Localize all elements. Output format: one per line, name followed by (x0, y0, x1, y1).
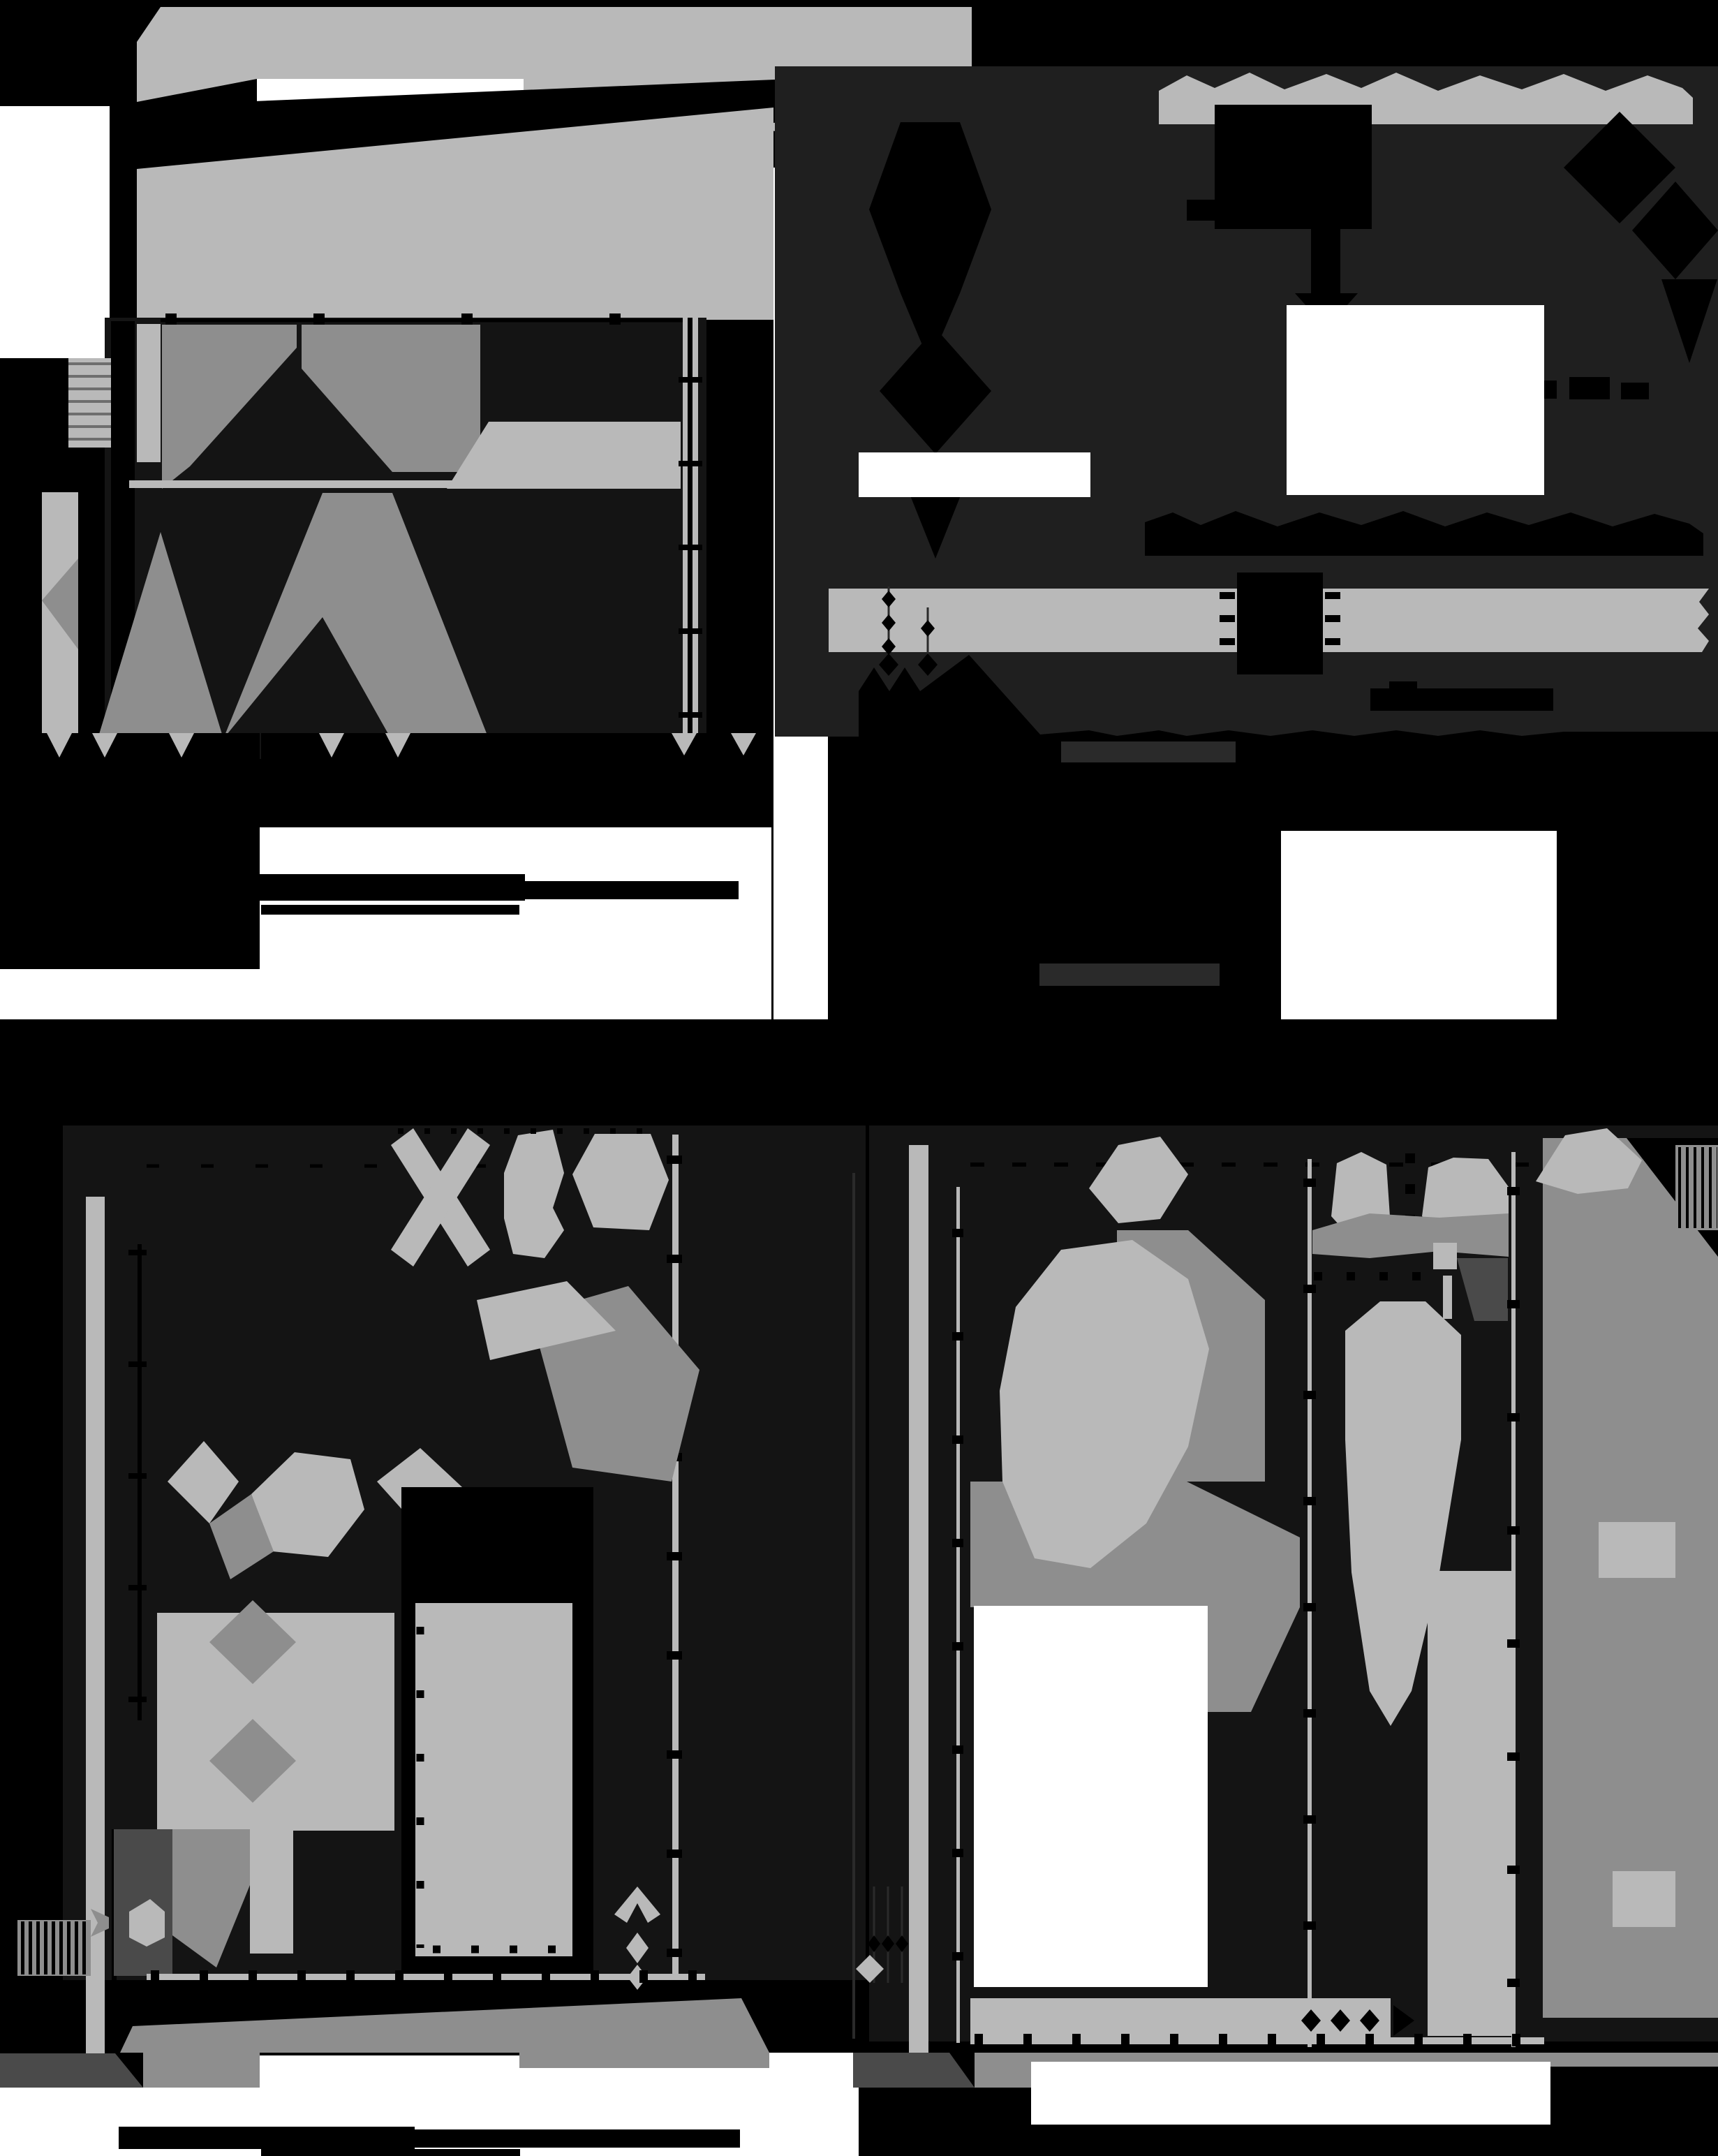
road-band-l1 (143, 2053, 260, 2088)
white-r (1031, 2062, 1550, 2125)
caption-underline (261, 905, 519, 915)
scalebar-blob-1 (119, 2127, 415, 2149)
left-bar (909, 1145, 928, 2065)
undertext-blob (1370, 688, 1553, 711)
corner-dark-left (0, 2053, 143, 2088)
white-court (974, 1606, 1208, 1987)
glyph-stem (1311, 229, 1340, 293)
courtyard-inner (415, 1603, 572, 1956)
corner-dark-right (859, 2053, 975, 2088)
room-strip (137, 324, 161, 462)
white-l2 (519, 2068, 859, 2088)
divider-band (0, 1019, 1718, 1135)
field-patch-1 (1599, 1522, 1675, 1578)
white-l3 (769, 2053, 853, 2068)
wall-1 (956, 1187, 960, 2043)
section-box (1237, 573, 1323, 674)
white-panel-a (1287, 305, 1544, 495)
undertext-bump (1389, 681, 1417, 690)
subtext-blob (1187, 200, 1339, 221)
margin-gap-white (260, 2055, 519, 2088)
glyph-marks-2 (1569, 377, 1610, 399)
scalebar-blob-2 (415, 2129, 740, 2148)
black-r1 (859, 2088, 1031, 2125)
caption-blob-1 (216, 871, 257, 902)
connector-stem (1443, 1276, 1452, 1319)
field-patch-2 (1613, 1871, 1675, 1927)
tree-blob-2 (504, 1130, 564, 1258)
mid-wall (129, 480, 482, 488)
road-band-l2 (519, 2053, 769, 2068)
faint-text-1 (1061, 741, 1236, 762)
architectural-drawing-canvas (0, 0, 1718, 2156)
bottom-margin (0, 2053, 1718, 2156)
caption-blob-2 (257, 874, 525, 901)
bottom-wall-line (970, 2037, 1544, 2044)
light-column (250, 1829, 293, 1954)
dark-column (114, 1829, 172, 1976)
dark-sliver (853, 2053, 859, 2088)
under-block-left (0, 733, 260, 969)
left-page-margin (0, 106, 110, 358)
bottom-wall-line (147, 1974, 705, 1980)
middle-divider (0, 1019, 1718, 1135)
white-panel-b (1281, 831, 1557, 1025)
white-note-block (859, 452, 1090, 497)
black-r3 (1550, 2067, 1718, 2125)
bottom-band (970, 1998, 1391, 2043)
under-block-right (261, 733, 771, 827)
lower-margin-right (260, 827, 771, 1019)
faint-text-2 (1039, 963, 1220, 986)
connector-block (1433, 1243, 1457, 1269)
wall-3 (1511, 1152, 1516, 2047)
scanned-drawing-sheet (0, 0, 1718, 2156)
upper-right-elevation (775, 66, 1718, 1025)
glyph-marks-3 (1621, 383, 1649, 399)
light-column (1428, 1571, 1515, 2036)
caption-blob-3 (525, 881, 739, 899)
scalebar-stub (261, 2149, 520, 2156)
lower-margin-left (0, 969, 260, 1019)
right-wall-inner (688, 318, 693, 759)
lower-left-floor-plan (17, 1125, 866, 2057)
corner-block (0, 0, 137, 106)
black-r2 (859, 2125, 1718, 2156)
lower-right-floor-plan (856, 1125, 1718, 2065)
left-wall-upper (138, 1244, 142, 1720)
